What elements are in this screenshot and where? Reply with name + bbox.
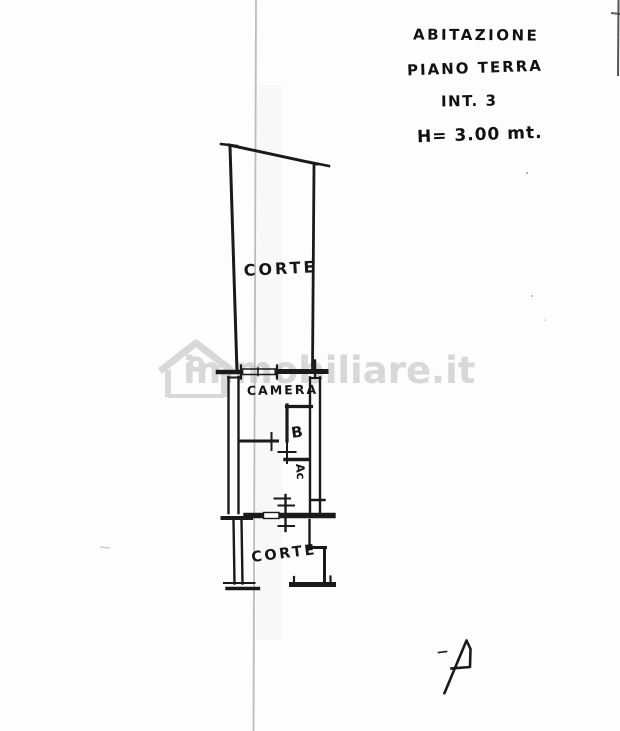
north-arrow-icon <box>439 641 471 694</box>
scan-fold-line <box>254 0 257 731</box>
floorplan-drawing: CORTE CAMERA <box>0 0 620 731</box>
room-label-upper-court: CORTE <box>243 257 318 280</box>
label-ac: Ac <box>293 463 308 480</box>
scanned-floorplan-page: ABITAZIONE PIANO TERRA INT. 3 H= 3.00 mt… <box>0 0 620 731</box>
scan-specks <box>100 172 546 548</box>
scan-edge-artifact <box>611 0 620 76</box>
room-label-camera: CAMERA <box>247 382 318 398</box>
room-label-bath: B <box>290 423 304 442</box>
